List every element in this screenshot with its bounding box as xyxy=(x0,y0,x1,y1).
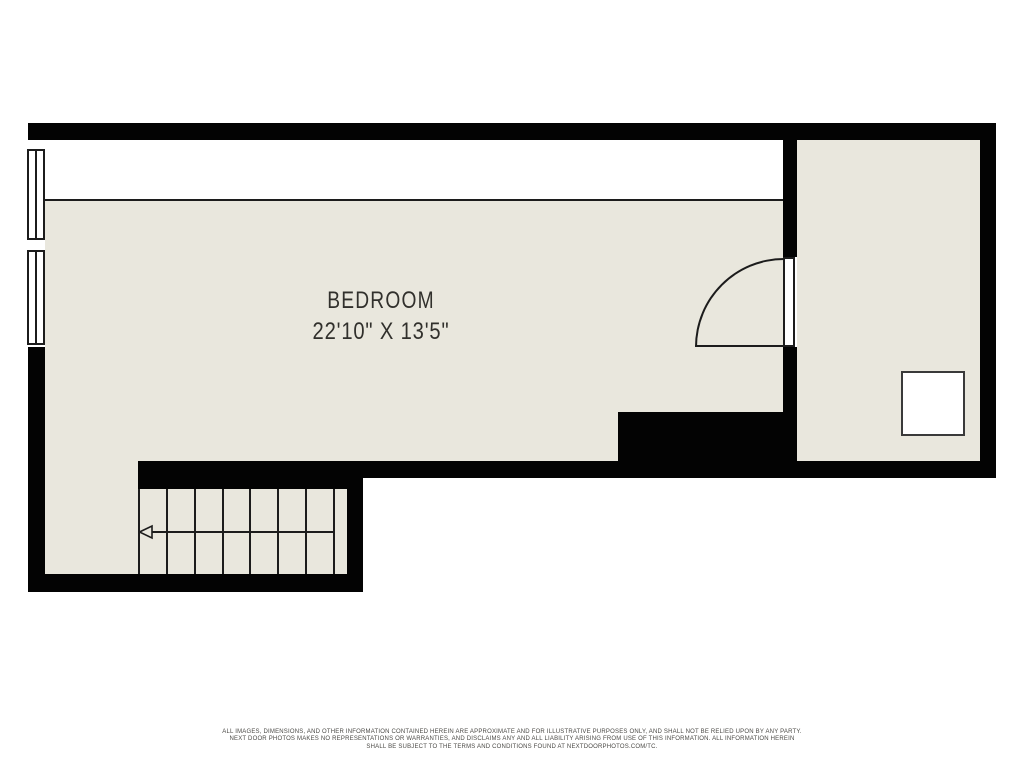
stairwell-top-wall xyxy=(138,461,363,489)
bedroom-floor-left-extension xyxy=(45,461,138,574)
disclaimer-line: SHALL BE SUBJECT TO THE TERMS AND CONDIT… xyxy=(0,744,1024,751)
bedroom-floor-lower xyxy=(45,412,618,461)
stair-tread-line xyxy=(166,489,168,574)
window-glass-line xyxy=(35,151,37,238)
wall-bottom-mid xyxy=(347,461,996,478)
door-leaf xyxy=(783,257,795,347)
wall-divider-upper xyxy=(783,123,797,258)
stairs xyxy=(138,489,347,574)
stair-tread-line xyxy=(249,489,251,574)
stairs-direction-arrow-icon xyxy=(138,524,154,540)
window-icon xyxy=(27,250,45,345)
floorplan-canvas: BEDROOM 22'10" X 13'5" ALL IMAGES, DIMEN… xyxy=(0,0,1024,768)
stair-tread-line xyxy=(333,489,335,574)
room-dimensions-label: 22'10" X 13'5" xyxy=(255,318,507,346)
wall-right xyxy=(980,123,996,478)
stair-tread-line xyxy=(194,489,196,574)
wall-top xyxy=(28,123,996,140)
window-icon xyxy=(27,149,45,240)
disclaimer-line: NEXT DOOR PHOTOS MAKES NO REPRESENTATION… xyxy=(0,736,1024,743)
disclaimer-text: ALL IMAGES, DIMENSIONS, AND OTHER INFORM… xyxy=(0,729,1024,751)
stair-tread-line xyxy=(138,489,140,574)
stair-tread-line xyxy=(305,489,307,574)
window-glass-line xyxy=(35,252,37,343)
wall-step-block xyxy=(618,412,797,461)
stair-tread-line xyxy=(277,489,279,574)
stair-tread-line xyxy=(222,489,224,574)
bedroom-upper-strip xyxy=(45,140,783,201)
room-name-label: BEDROOM xyxy=(261,287,501,315)
fixture-square xyxy=(901,371,965,436)
wall-bottom-left xyxy=(28,574,363,592)
stairwell-right-wall xyxy=(347,461,363,592)
room-label-block: BEDROOM 22'10" X 13'5" xyxy=(231,287,531,346)
disclaimer-line: ALL IMAGES, DIMENSIONS, AND OTHER INFORM… xyxy=(0,729,1024,736)
